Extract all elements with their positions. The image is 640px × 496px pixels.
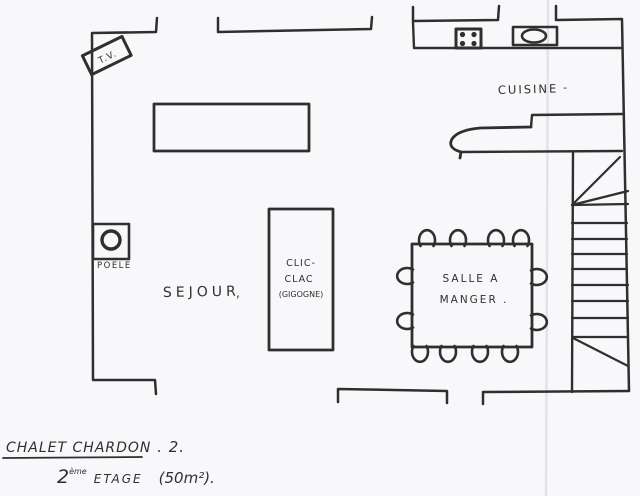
floor-word: ETAGE	[94, 472, 143, 486]
floor-number: 2	[57, 466, 69, 488]
kitchen-stair-divider-line	[461, 151, 622, 152]
clic-clac-label-line2: CLAC	[284, 274, 313, 285]
sejour-label-mark: ,	[236, 286, 240, 300]
sejour-label: SEJOUR	[163, 284, 240, 301]
clic-clac-label-line1: CLIC-	[286, 258, 316, 269]
plan-title-suffix: . 2.	[151, 438, 185, 456]
plan-title-name: CHALET CHARDON	[6, 440, 151, 456]
scanned-floor-plan-page: T.V. POELE CLIC- CLAC (GIGOGNE)	[0, 0, 640, 496]
floor-area: (50m²).	[159, 469, 215, 487]
stairs-left-wall	[572, 152, 573, 392]
plan-title: CHALET CHARDON . 2.	[6, 438, 185, 456]
cooktop-burner	[460, 32, 465, 37]
floor-ordinal: ème	[69, 466, 87, 476]
title-underline	[3, 457, 142, 458]
floor-plan-canvas: T.V. POELE CLIC- CLAC (GIGOGNE)	[0, 0, 640, 496]
cuisine-label: CUISINE	[498, 81, 559, 97]
salle-a-manger-label-line1: SALLE A	[443, 273, 500, 285]
poele-label: POELE	[97, 261, 132, 271]
clic-clac-label-line3: (GIGOGNE)	[279, 290, 324, 299]
paper-background	[0, 0, 640, 496]
salle-a-manger-label-line2: MANGER .	[440, 294, 509, 306]
cooktop-burner	[471, 32, 476, 37]
cooktop-burner	[471, 41, 476, 46]
stairs-winder-step	[572, 204, 628, 205]
cooktop-burner	[460, 41, 465, 46]
cuisine-label-mark: -	[563, 81, 567, 94]
